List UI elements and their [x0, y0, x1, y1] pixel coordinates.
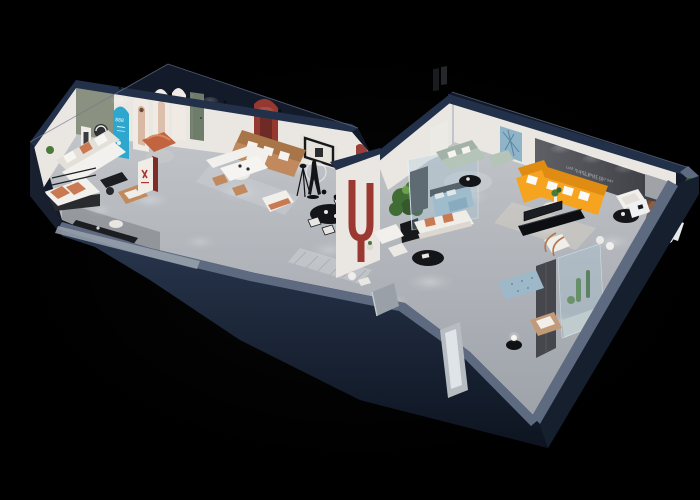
black-oval-table — [412, 250, 444, 266]
pendant-lamp-1 — [322, 190, 327, 195]
small-white-chair — [348, 272, 356, 280]
table-setting-2 — [246, 167, 249, 170]
door-knob — [200, 117, 202, 119]
poster-dot — [117, 141, 121, 145]
red-glyph-bar — [141, 182, 149, 183]
art-content — [315, 148, 323, 157]
side-plant — [368, 241, 372, 245]
den-black-frame-2 — [441, 66, 447, 85]
desk-chair — [106, 187, 114, 195]
arch-poster-1-face — [139, 108, 143, 112]
tray — [621, 212, 625, 216]
showroom-render: 888 — [0, 0, 700, 500]
white-side-chair — [606, 242, 614, 250]
dish — [324, 210, 328, 214]
console-deco — [96, 226, 99, 229]
round-side-table — [596, 236, 604, 244]
red-u-arch-column — [330, 148, 386, 278]
den-round-table — [459, 175, 481, 187]
den-table-deco — [466, 177, 470, 181]
isometric-floorplan-svg: 888 — [0, 0, 700, 500]
sculpture-base — [307, 195, 319, 199]
corner-plant — [46, 146, 54, 154]
lamp-head — [300, 164, 307, 168]
poster-glyphs: 888 — [115, 117, 125, 124]
red-poster-stand — [138, 156, 158, 196]
dark-room-table — [109, 220, 123, 228]
lamp-glow — [508, 332, 520, 344]
den-black-frame-1 — [433, 68, 439, 91]
table-setting — [238, 164, 241, 167]
